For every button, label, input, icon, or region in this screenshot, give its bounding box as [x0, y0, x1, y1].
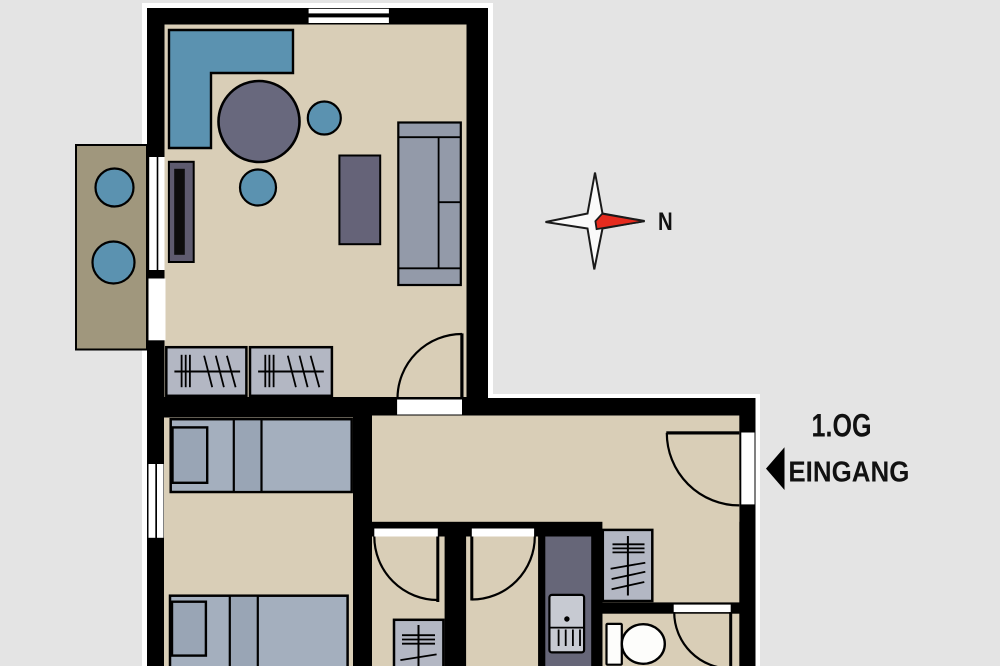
- svg-text:EINGANG: EINGANG: [788, 456, 909, 488]
- svg-text:N: N: [658, 208, 673, 236]
- svg-text:1.OG: 1.OG: [812, 408, 872, 444]
